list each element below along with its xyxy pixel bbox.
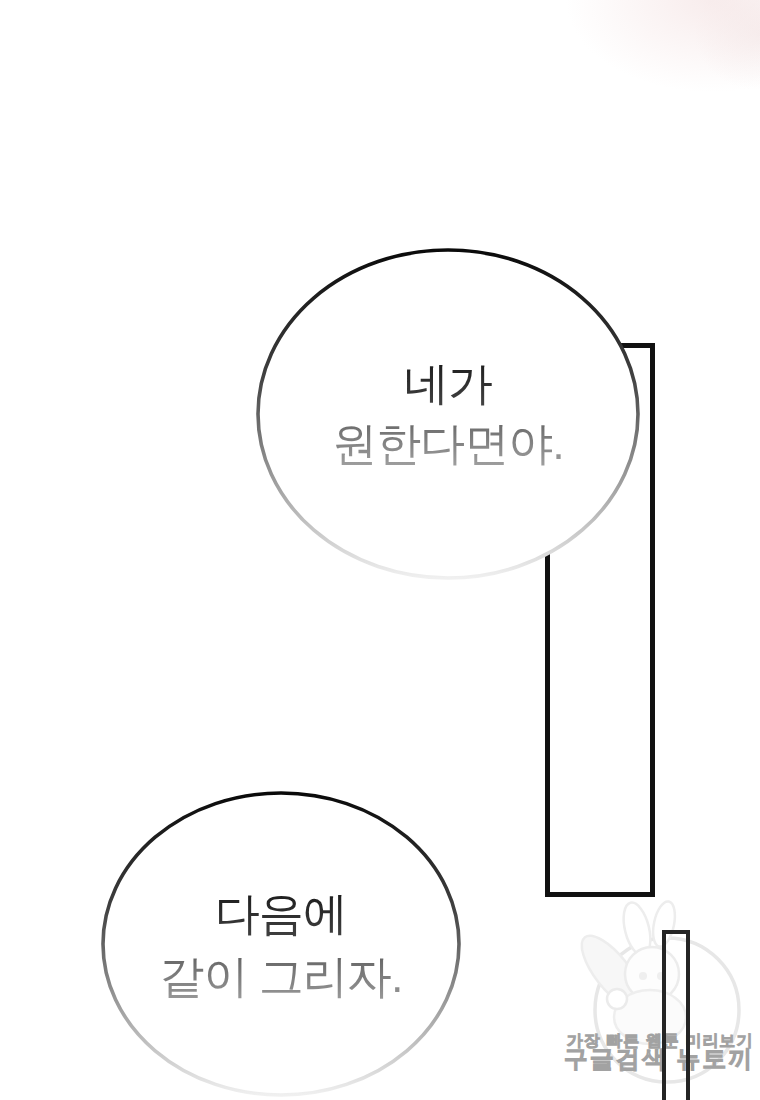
- webtoon-page: 가장 빠른 웹툰 미리보기 구글검색 뉴토끼 네가 원한다면야. 다음에 같이 …: [0, 0, 760, 1100]
- watermark-brand: 구글검색 뉴토끼: [548, 1043, 760, 1075]
- speech-line: 다음에: [101, 882, 461, 945]
- watermark-character-eye-left: [639, 972, 647, 980]
- panel-frame-narrow: [662, 930, 690, 1100]
- watermark-small-rabbit: [607, 989, 627, 1009]
- speech-line: 네가: [253, 354, 643, 414]
- speech-line: 원한다면야.: [253, 414, 643, 474]
- speech-bubble-bottom-text: 다음에 같이 그리자.: [101, 882, 461, 1008]
- speech-line: 같이 그리자.: [101, 945, 461, 1008]
- speech-bubble-top-text: 네가 원한다면야.: [253, 354, 643, 474]
